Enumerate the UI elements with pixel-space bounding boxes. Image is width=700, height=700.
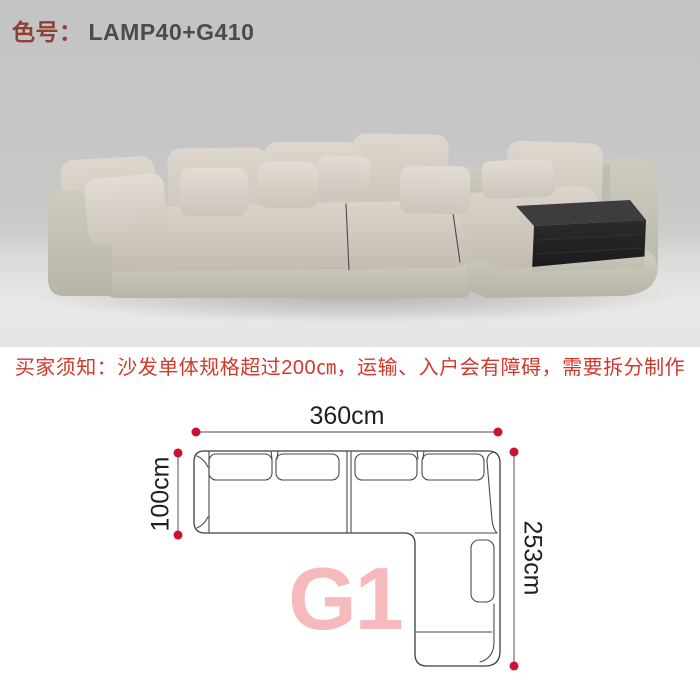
model-code-label: G1 xyxy=(288,549,401,648)
dimension-dot xyxy=(192,428,201,437)
dimension-dot xyxy=(174,531,183,540)
sofa-photo-illustration xyxy=(0,0,700,347)
dimension-width-label: 360cm xyxy=(309,402,384,430)
dimension-dot xyxy=(174,449,183,458)
dimension-depth-label: 100cm xyxy=(147,456,175,531)
sofa-dimension-diagram: G1 360cm xyxy=(0,378,700,700)
dimension-dot xyxy=(510,448,519,457)
dimension-dot xyxy=(510,662,519,671)
buyer-notice-text: 买家须知：沙发单体规格超过200㎝，运输、入户会有障碍，需要拆分制作 xyxy=(0,351,700,380)
dimension-depth: 100cm xyxy=(147,449,183,540)
color-code-value: LAMP40+G410 xyxy=(89,19,255,45)
color-code-header: 色号：LAMP40+G410 xyxy=(12,13,254,47)
color-code-label: 色号： xyxy=(12,19,83,45)
dimension-width: 360cm xyxy=(192,402,503,437)
product-photo-section: 色号：LAMP40+G410 xyxy=(0,0,700,347)
dimension-dot xyxy=(494,428,503,437)
dimension-length: 253cm xyxy=(510,448,547,671)
dimension-length-label: 253cm xyxy=(518,520,546,595)
